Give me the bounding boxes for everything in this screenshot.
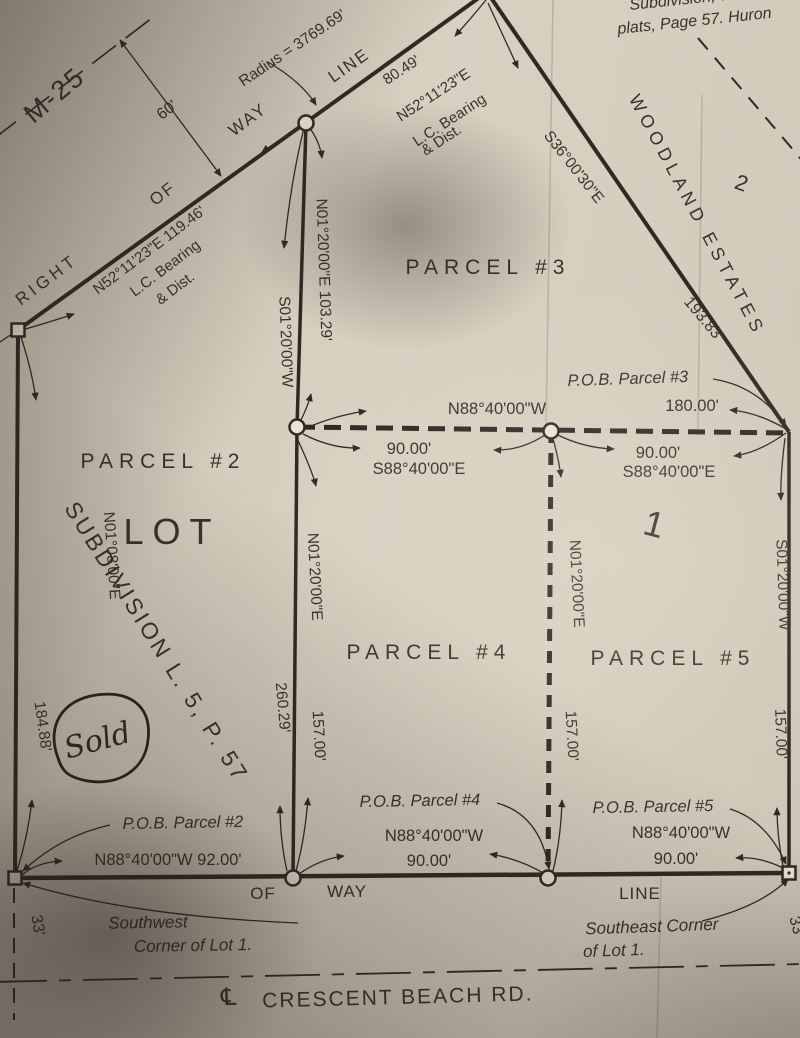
southeast-corner-line2: of Lot 1. bbox=[583, 940, 645, 961]
south-row-word-way: WAY bbox=[327, 882, 367, 901]
parcel4-south-distance: 90.00' bbox=[407, 852, 451, 870]
leader-arrow bbox=[734, 433, 786, 456]
south-boundary-line bbox=[15, 873, 789, 878]
parcel3-pob-label: P.O.B. Parcel #3 bbox=[567, 368, 689, 390]
parcel5-east-bearing: S01°20'00"W bbox=[772, 539, 792, 631]
parcel2-east-distance: 260.29' bbox=[272, 682, 293, 734]
leader-arrow bbox=[303, 434, 360, 448]
lot1-number: 1 bbox=[639, 502, 669, 547]
monument-square-marker bbox=[12, 324, 25, 337]
sold-handwritten-label: Sold bbox=[60, 715, 134, 766]
plat-labels: M-25 RIGHT OF WAY LINE 60' Radius = 3769… bbox=[12, 0, 800, 1013]
parcel5-south-distance: 90.00' bbox=[654, 850, 698, 868]
parcel5-south-bearing: N88°40'00"W bbox=[632, 824, 731, 842]
row-width-label: 60' bbox=[154, 97, 181, 123]
plat-drawing: Sold M-25 RIGHT OF WAY LINE 60' Radius =… bbox=[0, 0, 800, 1038]
leader-arrow bbox=[17, 800, 32, 871]
leader-arrow bbox=[781, 438, 785, 500]
south-row-word-line: LINE bbox=[619, 884, 661, 903]
west-boundary-line bbox=[15, 330, 18, 878]
parcel2-west-distance: 184.88' bbox=[31, 700, 55, 752]
parcel3-west-bearing-distance: N01°20'00"E 103.29' bbox=[313, 198, 335, 341]
parcel5-pob-label: P.O.B. Parcel #5 bbox=[592, 797, 714, 817]
monument-circle-marker bbox=[299, 116, 314, 131]
leader-arrow bbox=[309, 127, 322, 158]
parcel4-south-bearing: N88°40'00"W bbox=[385, 827, 484, 845]
split-left-bearing: S88°40'00"E bbox=[373, 460, 466, 478]
survey-plat-scan: Sold M-25 RIGHT OF WAY LINE 60' Radius =… bbox=[0, 0, 800, 1038]
crease-line bbox=[698, 95, 702, 430]
crease-line bbox=[546, 0, 553, 428]
parcel2-lot-label: LOT bbox=[123, 511, 220, 552]
leader-arrow bbox=[296, 798, 308, 871]
woodland-boundary-line bbox=[487, 0, 789, 432]
center-line-lower bbox=[293, 427, 297, 878]
woodland-plat-dashed-line bbox=[698, 38, 800, 172]
crescent-beach-road-label: CRESCENT BEACH RD. bbox=[262, 982, 534, 1012]
east-33ft-label: 33' bbox=[785, 915, 800, 940]
row-word-right: RIGHT bbox=[12, 250, 82, 309]
parcel4-east-distance: 157.00' bbox=[562, 710, 582, 761]
woodland-boundary-distance: 193.83' bbox=[680, 294, 726, 345]
sold-annotation: Sold bbox=[54, 694, 148, 782]
leader-arrow bbox=[300, 394, 311, 422]
survey-monuments bbox=[9, 116, 796, 886]
pob3-leader-arrow bbox=[713, 379, 786, 426]
parcel4-title: PARCEL #4 bbox=[347, 641, 512, 664]
centerline-symbol: ℄ bbox=[220, 984, 238, 1012]
split-right-bearing: S88°40'00"E bbox=[623, 463, 716, 481]
parcel4-pob-label: P.O.B. Parcel #4 bbox=[359, 791, 480, 811]
parcel2-south-bearing-distance: N88°40'00"W 92.00' bbox=[94, 851, 241, 869]
parcel4-west-bearing: N01°20'00"E bbox=[304, 532, 326, 621]
row-word-way: WAY bbox=[225, 99, 271, 140]
parcel3-west-bearing-reverse: S01°20'00"W bbox=[275, 296, 295, 388]
parcel4-west-distance: 157.00' bbox=[309, 710, 329, 761]
monument-center-dot bbox=[787, 871, 790, 874]
leader-arrow bbox=[21, 861, 62, 876]
leader-arrow bbox=[284, 128, 304, 248]
parcel3-title: PARCEL #3 bbox=[406, 256, 571, 279]
split-right-distance: 90.00' bbox=[636, 444, 680, 462]
leader-arrow bbox=[553, 800, 562, 871]
split-left-distance: 90.00' bbox=[387, 440, 431, 458]
west-33ft-label: 33' bbox=[27, 913, 47, 936]
m25-road-label: M-25 bbox=[18, 61, 91, 129]
parcel2-title: PARCEL #2 bbox=[81, 450, 246, 473]
row-word-of: OF bbox=[146, 178, 179, 210]
curve2-distance: 80.49' bbox=[380, 52, 423, 88]
parcel-split-dashed-vertical bbox=[548, 431, 551, 878]
leader-arrow bbox=[299, 856, 344, 874]
parcel3-north-bearing: N88°40'00"W bbox=[448, 400, 547, 418]
pob4-leader-arrow bbox=[497, 803, 549, 869]
leader-arrow bbox=[280, 806, 287, 871]
crescent-beach-centerline-dashed bbox=[0, 964, 800, 982]
leader-arrow bbox=[490, 854, 545, 874]
southwest-corner-line1: Southwest bbox=[108, 912, 189, 932]
monument-circle-marker bbox=[286, 871, 301, 886]
leader-arrow bbox=[552, 435, 561, 477]
monument-square-marker bbox=[9, 872, 22, 885]
parcel2-west-bearing: N01°08'00"E bbox=[100, 511, 123, 600]
leader-arrow bbox=[554, 433, 614, 449]
monument-circle-marker bbox=[541, 871, 556, 886]
row-diagonal-line bbox=[18, 0, 487, 330]
south-row-word-of: OF bbox=[250, 884, 276, 903]
center-line-upper bbox=[297, 123, 306, 427]
leader-arrow bbox=[20, 334, 36, 400]
monument-circle-marker bbox=[290, 420, 305, 435]
leader-arrow bbox=[736, 858, 785, 869]
southeast-corner-line1: Southeast Corner bbox=[585, 915, 720, 939]
parcel5-title: PARCEL #5 bbox=[591, 647, 756, 670]
southwest-corner-line2: Corner of Lot 1. bbox=[134, 935, 252, 956]
parcel3-north-distance: 180.00' bbox=[665, 397, 719, 415]
parcel5-east-distance: 157.00' bbox=[771, 708, 790, 759]
woodland-lot2-number: 2 bbox=[732, 169, 752, 197]
monument-circle-marker bbox=[544, 424, 559, 439]
leader-arrow bbox=[494, 433, 548, 450]
parcel4-east-bearing: N01°20'00"E bbox=[566, 539, 588, 628]
parcel2-pob-label: P.O.B. Parcel #2 bbox=[122, 813, 243, 833]
